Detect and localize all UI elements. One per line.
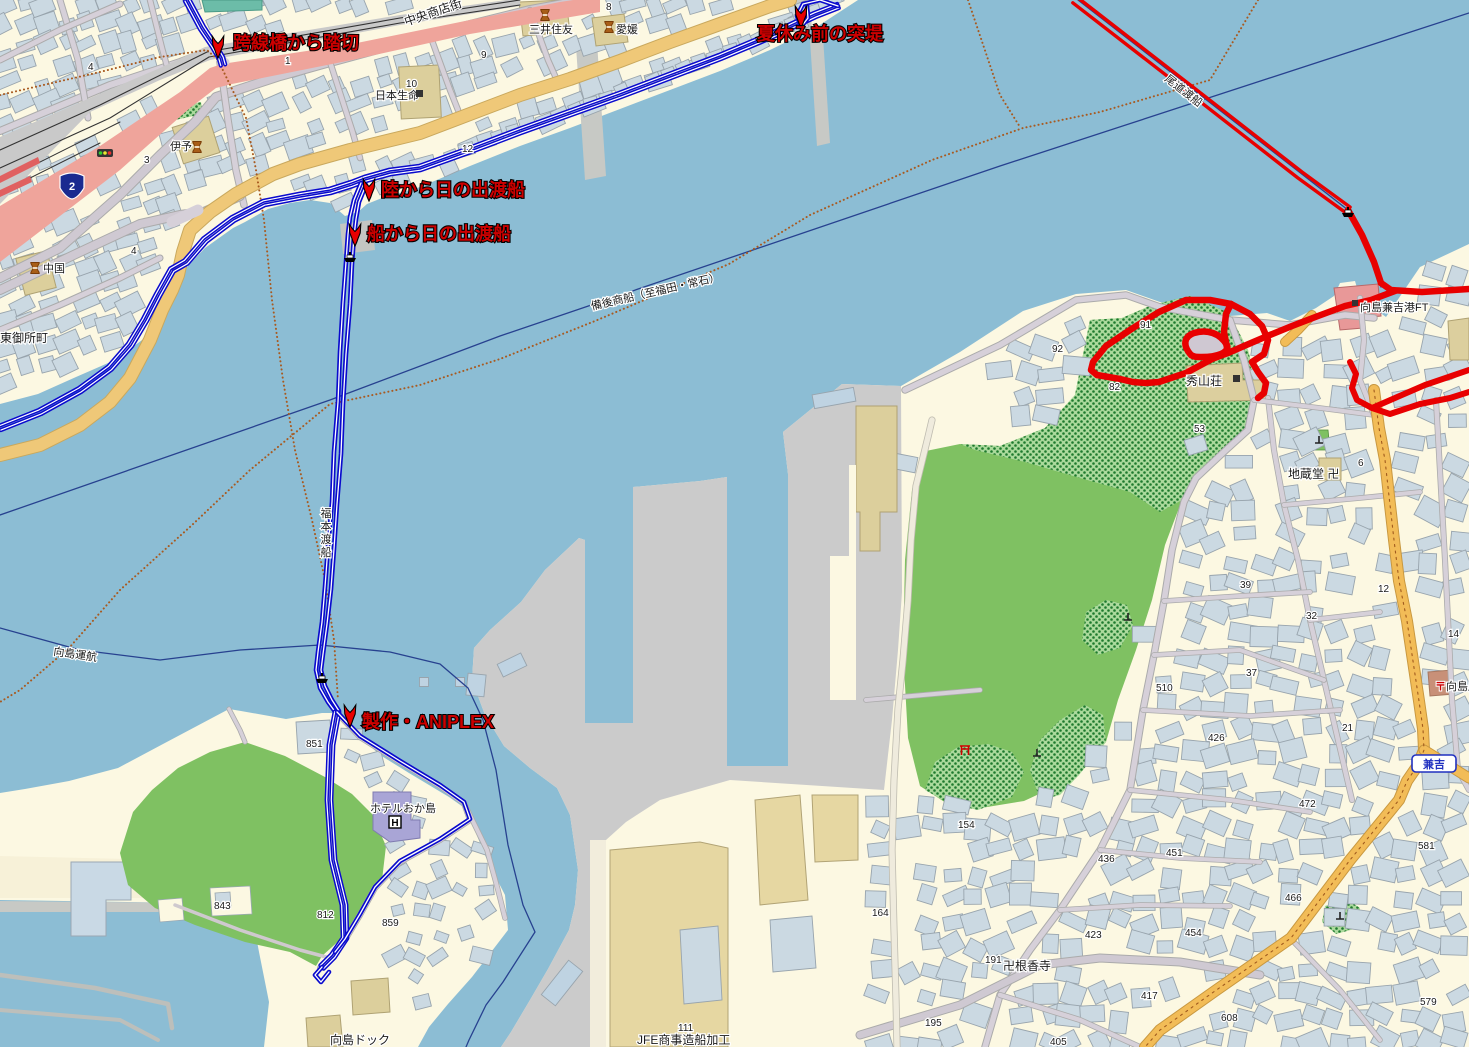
svg-text:454: 454 <box>1185 928 1202 939</box>
svg-text:92: 92 <box>1052 344 1064 355</box>
svg-text:12: 12 <box>462 144 474 155</box>
svg-text:417: 417 <box>1141 991 1158 1002</box>
svg-text:195: 195 <box>925 1018 942 1029</box>
svg-text:32: 32 <box>1306 611 1318 622</box>
svg-text:〒: 〒 <box>1435 680 1446 693</box>
svg-text:2: 2 <box>69 181 75 193</box>
svg-text:436: 436 <box>1098 854 1115 865</box>
svg-text:111: 111 <box>678 1023 694 1034</box>
svg-text:510: 510 <box>1156 683 1173 694</box>
svg-text:91: 91 <box>1140 320 1152 331</box>
svg-text:兼吉: 兼吉 <box>1423 757 1445 771</box>
svg-text:423: 423 <box>1085 930 1102 941</box>
svg-text:東御所町: 東御所町 <box>0 330 48 345</box>
svg-text:164: 164 <box>872 908 889 919</box>
svg-text:JFE商事造船加工: JFE商事造船加工 <box>637 1032 730 1047</box>
svg-text:向島局: 向島局 <box>1446 679 1469 693</box>
svg-text:12: 12 <box>1378 584 1390 595</box>
svg-text:陸から日の出渡船: 陸から日の出渡船 <box>381 179 525 200</box>
svg-text:451: 451 <box>1166 848 1183 859</box>
svg-text:8: 8 <box>606 2 612 13</box>
svg-text:472: 472 <box>1299 799 1316 810</box>
svg-text:82: 82 <box>1109 382 1121 393</box>
svg-text:608: 608 <box>1221 1013 1238 1024</box>
svg-text:製作・ANIPLEX: 製作・ANIPLEX <box>361 711 494 732</box>
svg-text:船: 船 <box>321 545 332 559</box>
svg-text:卍根香寺: 卍根香寺 <box>1003 959 1051 973</box>
svg-text:466: 466 <box>1285 893 1302 904</box>
svg-text:53: 53 <box>1194 424 1206 435</box>
svg-text:伊予: 伊予 <box>170 140 192 153</box>
svg-text:夏休み前の突堤: 夏休み前の突堤 <box>757 23 884 44</box>
svg-text:中国: 中国 <box>43 262 65 275</box>
svg-text:426: 426 <box>1208 733 1225 744</box>
svg-text:21: 21 <box>1342 723 1354 734</box>
svg-text:851: 851 <box>306 739 323 750</box>
svg-text:福: 福 <box>321 506 332 520</box>
svg-text:812: 812 <box>317 910 334 921</box>
svg-text:渡: 渡 <box>321 532 332 546</box>
svg-text:579: 579 <box>1420 997 1437 1008</box>
svg-text:H: H <box>391 818 398 829</box>
svg-text:6: 6 <box>1358 458 1364 469</box>
svg-text:154: 154 <box>958 820 975 831</box>
svg-text:地蔵堂 卍: 地蔵堂 卍 <box>1288 467 1339 481</box>
svg-text:37: 37 <box>1246 668 1258 679</box>
svg-text:三井住友: 三井住友 <box>529 22 573 36</box>
svg-text:191: 191 <box>985 955 1002 966</box>
svg-text:1: 1 <box>285 56 291 67</box>
svg-text:843: 843 <box>214 901 231 912</box>
svg-text:4: 4 <box>88 62 94 73</box>
svg-text:向島ドック: 向島ドック <box>330 1032 390 1047</box>
svg-text:9: 9 <box>481 50 487 61</box>
svg-text:愛媛: 愛媛 <box>616 22 638 36</box>
svg-text:秀山荘: 秀山荘 <box>1186 374 1222 388</box>
svg-text:10: 10 <box>406 79 418 90</box>
svg-text:船から日の出渡船: 船から日の出渡船 <box>367 223 511 244</box>
svg-text:581: 581 <box>1418 841 1435 852</box>
svg-text:859: 859 <box>382 918 399 929</box>
svg-text:ホテルおか島: ホテルおか島 <box>370 801 436 815</box>
svg-text:14: 14 <box>1448 629 1460 640</box>
svg-text:日本生命: 日本生命 <box>375 88 419 102</box>
svg-text:4: 4 <box>131 246 137 257</box>
svg-text:本: 本 <box>321 519 332 533</box>
svg-text:跨線橋から踏切: 跨線橋から踏切 <box>233 32 359 53</box>
svg-text:向島兼吉港FT: 向島兼吉港FT <box>1360 300 1429 314</box>
svg-text:39: 39 <box>1240 580 1252 591</box>
svg-text:405: 405 <box>1050 1037 1067 1047</box>
svg-text:3: 3 <box>144 155 150 166</box>
